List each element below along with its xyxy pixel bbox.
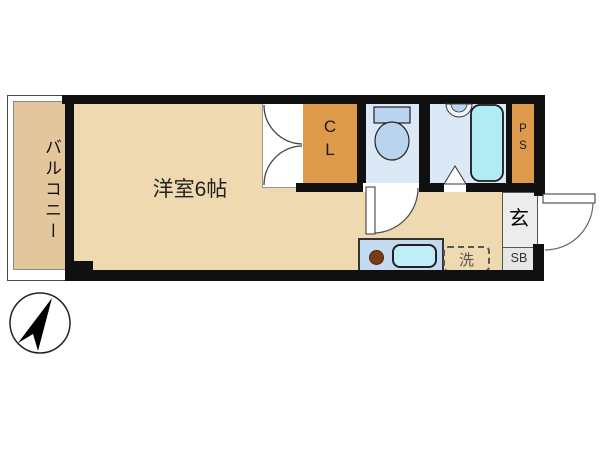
closet-letter-c: C — [303, 116, 357, 139]
pipe-space-label: P S — [512, 121, 534, 156]
toilet-tank-icon — [374, 107, 410, 123]
ps-letter-s: S — [512, 138, 534, 155]
closet-door-arc-top — [264, 105, 302, 144]
bath-door-icon — [444, 166, 466, 184]
ps-letter-p: P — [512, 121, 534, 138]
toilet-door-leaf — [366, 187, 375, 234]
bathtub-icon — [471, 105, 503, 181]
shoe-box-label: SB — [502, 251, 536, 265]
entrance-label: 玄 — [502, 202, 536, 231]
closet-door-arc-bottom — [264, 146, 302, 185]
balcony-label: バルコニー — [13, 112, 64, 268]
closet-letter-l: L — [303, 139, 357, 162]
toilet-icon — [375, 122, 409, 160]
floorplan-canvas: 洗 バルコニー — [0, 0, 600, 451]
entrance-door-leaf — [543, 194, 595, 203]
room-label: 洋室6帖 — [118, 173, 262, 203]
entrance-door-arc — [545, 203, 593, 250]
closet-label: C L — [303, 116, 357, 162]
